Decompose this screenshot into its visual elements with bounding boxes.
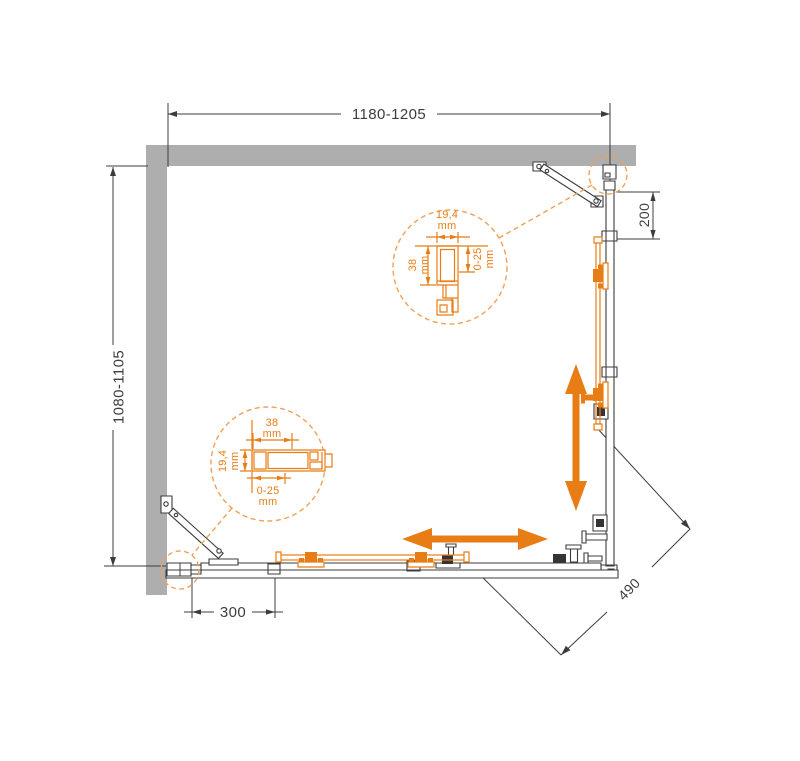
support-bar-left-screw-b bbox=[217, 549, 221, 553]
detail-bottom-width-unit: mm bbox=[263, 428, 282, 440]
detail-bottom-depth-value: 19,4 bbox=[217, 450, 229, 472]
side-offset-label: 200 bbox=[636, 203, 652, 228]
bottom-door-rollers bbox=[299, 552, 433, 563]
front-offset-dimension: 300 bbox=[184, 578, 283, 621]
detail-top-adjust-unit: mm bbox=[484, 250, 496, 269]
walls bbox=[146, 145, 636, 595]
support-bar-left-screw-a bbox=[174, 513, 177, 516]
slide-direction-arrows bbox=[402, 364, 587, 550]
detail-top-depth-unit: mm bbox=[419, 256, 431, 275]
diagonal-entry-label: 490 bbox=[615, 575, 644, 604]
right-fixed-panel bbox=[547, 165, 617, 578]
support-bar-left-mounts bbox=[161, 496, 238, 565]
detail-bottom-adjust-unit: mm bbox=[259, 496, 278, 508]
slide-arrow-vertical bbox=[565, 364, 587, 511]
side-offset-dimension: 200 bbox=[616, 192, 660, 239]
top-wall bbox=[146, 145, 636, 166]
support-bar-left-screw-wall bbox=[164, 502, 168, 506]
detail-top-adjust-value: 0-25 bbox=[472, 248, 484, 271]
front-offset-label: 300 bbox=[220, 604, 246, 621]
detail-bottom-depth-unit: mm bbox=[229, 452, 241, 471]
right-sliding-door bbox=[581, 237, 608, 430]
left-wall bbox=[146, 145, 167, 595]
width-dimension-label: 1180-1205 bbox=[352, 106, 426, 123]
support-bar-top-screw-wall bbox=[537, 164, 541, 168]
profile-detail-callout-top: 19,4 mm 38 mm 0-25 mm bbox=[393, 156, 627, 324]
slide-arrow-horizontal bbox=[402, 528, 548, 550]
detail-top-depth-value: 38 bbox=[407, 259, 419, 272]
profile-section-bottom bbox=[252, 450, 332, 471]
technical-drawing-canvas: 1180-1205 1080-1105 200 300 490 bbox=[0, 0, 800, 761]
support-bar-left bbox=[161, 496, 238, 565]
detail-top-width-unit: mm bbox=[438, 220, 457, 232]
support-bar-top bbox=[533, 162, 603, 207]
support-bar-top-screw-a bbox=[545, 169, 548, 172]
depth-dimension-label: 1080-1105 bbox=[111, 350, 128, 424]
shower-enclosure-plan: 1180-1205 1080-1105 200 300 490 bbox=[0, 0, 800, 761]
support-bar-top-screw-b bbox=[594, 199, 598, 203]
